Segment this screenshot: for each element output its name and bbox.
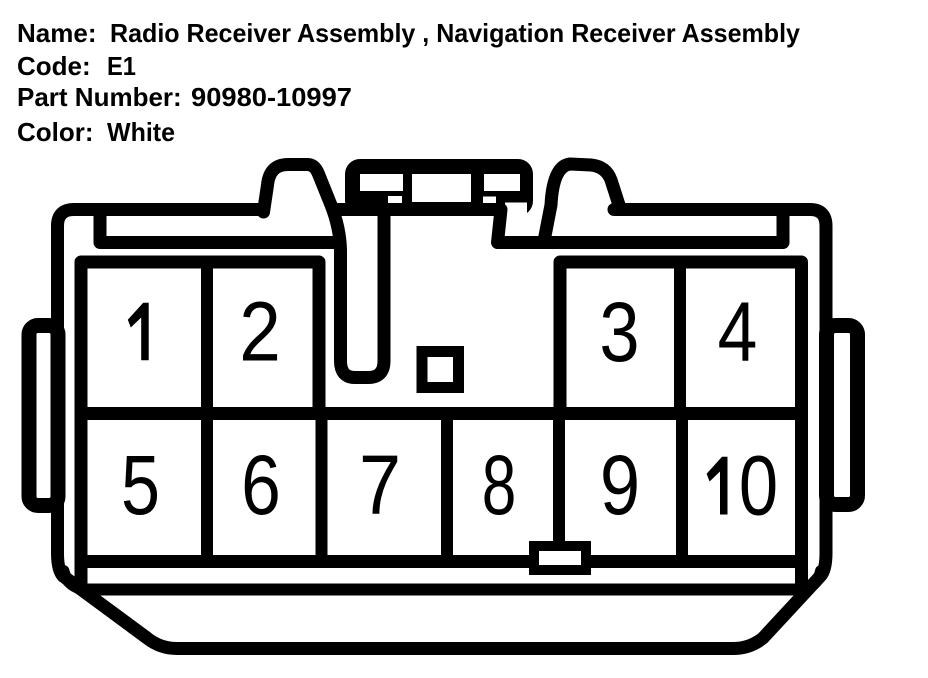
svg-text:Radio Receiver Assembly , Navi: Radio Receiver Assembly , Navigation Rec… xyxy=(110,18,801,48)
svg-text:White: White xyxy=(107,117,175,147)
svg-text:90980-10997: 90980-10997 xyxy=(191,82,352,112)
svg-text:9: 9 xyxy=(600,438,640,532)
svg-text:8: 8 xyxy=(482,438,517,532)
svg-text:4: 4 xyxy=(718,284,758,379)
svg-text:Code:: Code: xyxy=(17,51,91,81)
svg-text:2: 2 xyxy=(239,284,281,378)
svg-text:0: 0 xyxy=(739,440,778,533)
svg-text:Part Number:: Part Number: xyxy=(17,82,182,112)
svg-text:E1: E1 xyxy=(107,51,136,81)
svg-text:6: 6 xyxy=(241,437,281,532)
svg-text:Color:: Color: xyxy=(17,117,94,147)
svg-text:3: 3 xyxy=(599,285,639,379)
svg-text:Name:: Name: xyxy=(17,18,96,48)
svg-text:7: 7 xyxy=(359,438,401,532)
svg-text:5: 5 xyxy=(121,439,160,532)
